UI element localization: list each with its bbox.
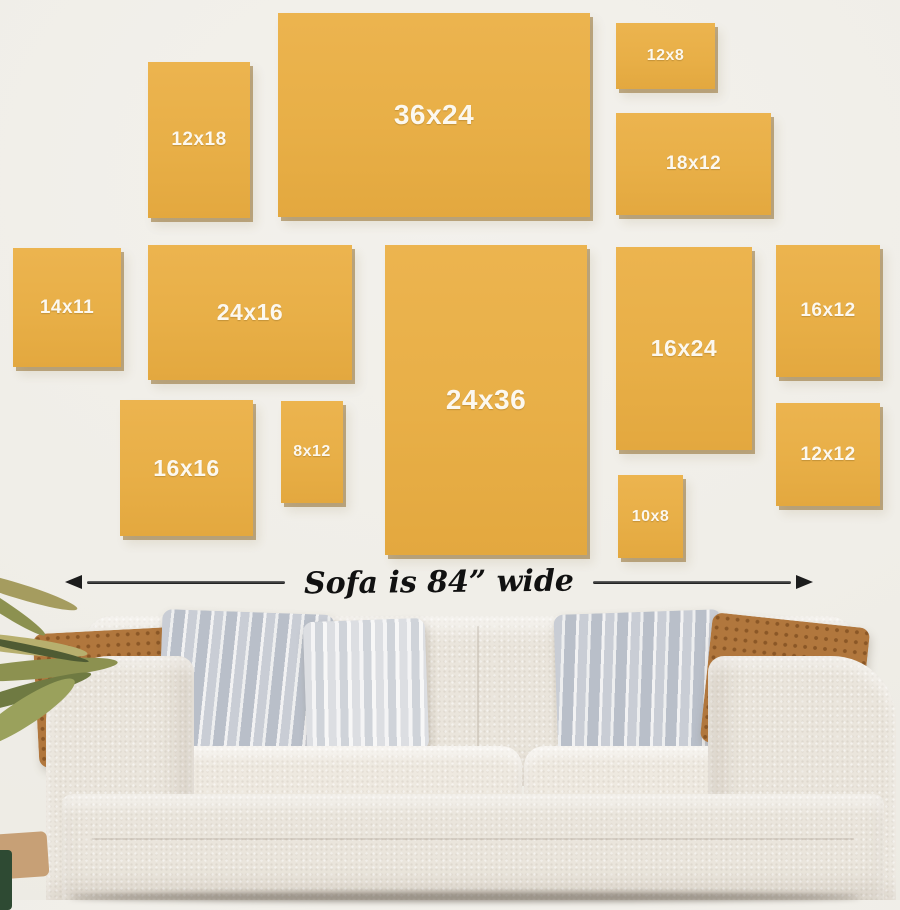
- backrest-seam: [477, 626, 479, 751]
- pillow-pale-striped-left: [303, 618, 430, 754]
- wall-art-size-guide: 12x18 36x24 12x8 18x12 14x11 24x16 24x36…: [0, 0, 900, 900]
- plant-pot: [0, 850, 12, 910]
- pillow-striped-right: [553, 609, 726, 765]
- sofa: [0, 0, 900, 900]
- sofa-base-seam: [92, 838, 854, 840]
- sofa-base: [62, 794, 884, 900]
- floor-shadow: [70, 892, 860, 902]
